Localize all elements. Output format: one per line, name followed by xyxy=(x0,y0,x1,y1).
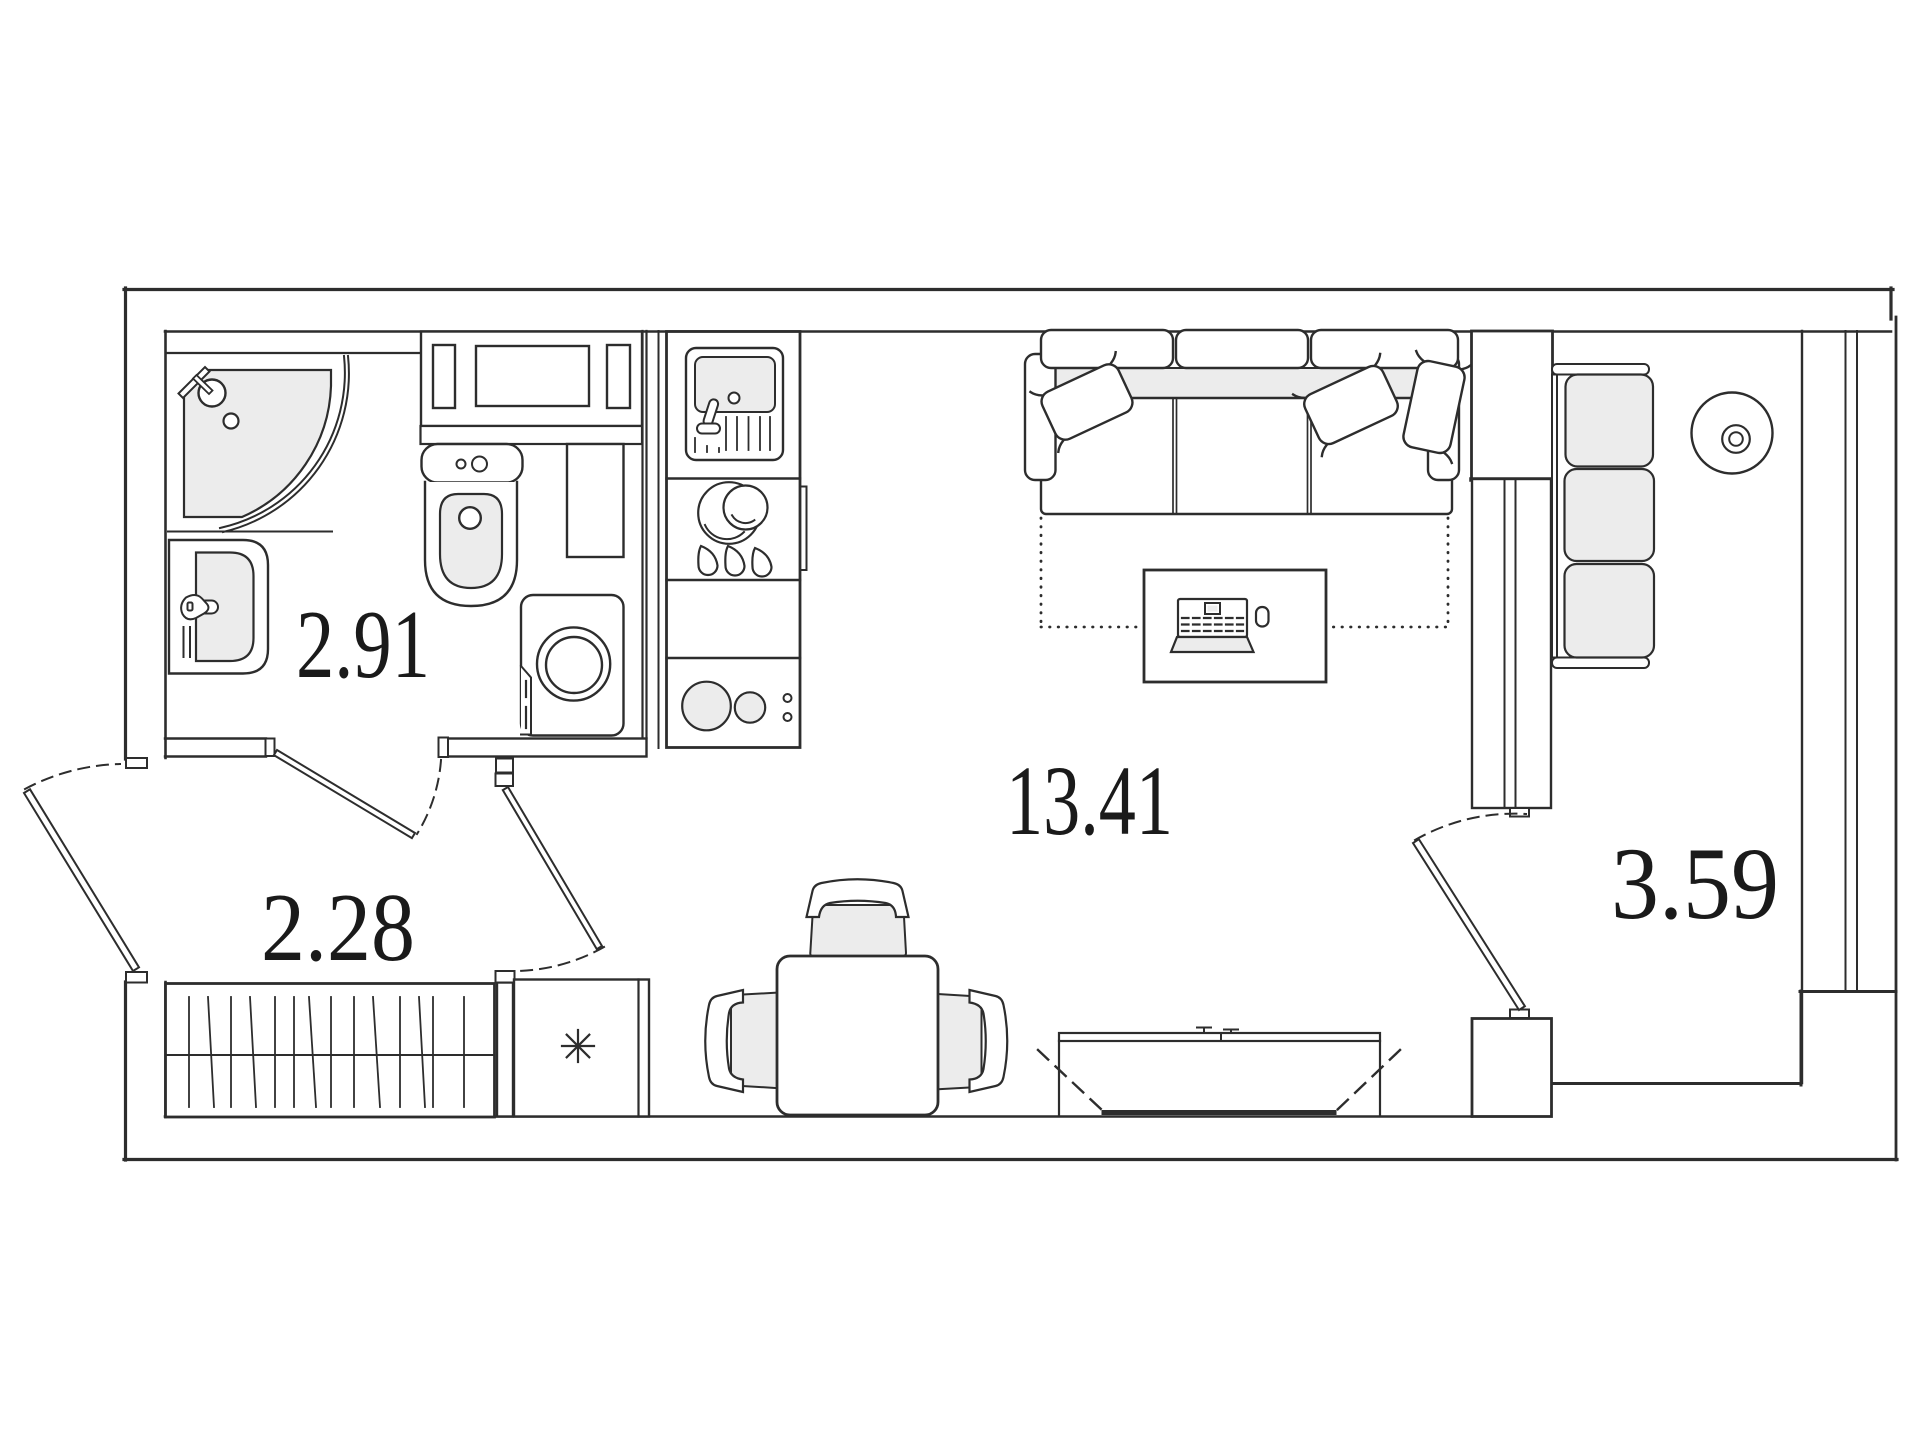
svg-text:3.59: 3.59 xyxy=(1611,827,1779,941)
svg-text:2.28: 2.28 xyxy=(261,874,415,982)
svg-text:2.91: 2.91 xyxy=(296,591,430,699)
svg-text:13.41: 13.41 xyxy=(1006,745,1173,856)
